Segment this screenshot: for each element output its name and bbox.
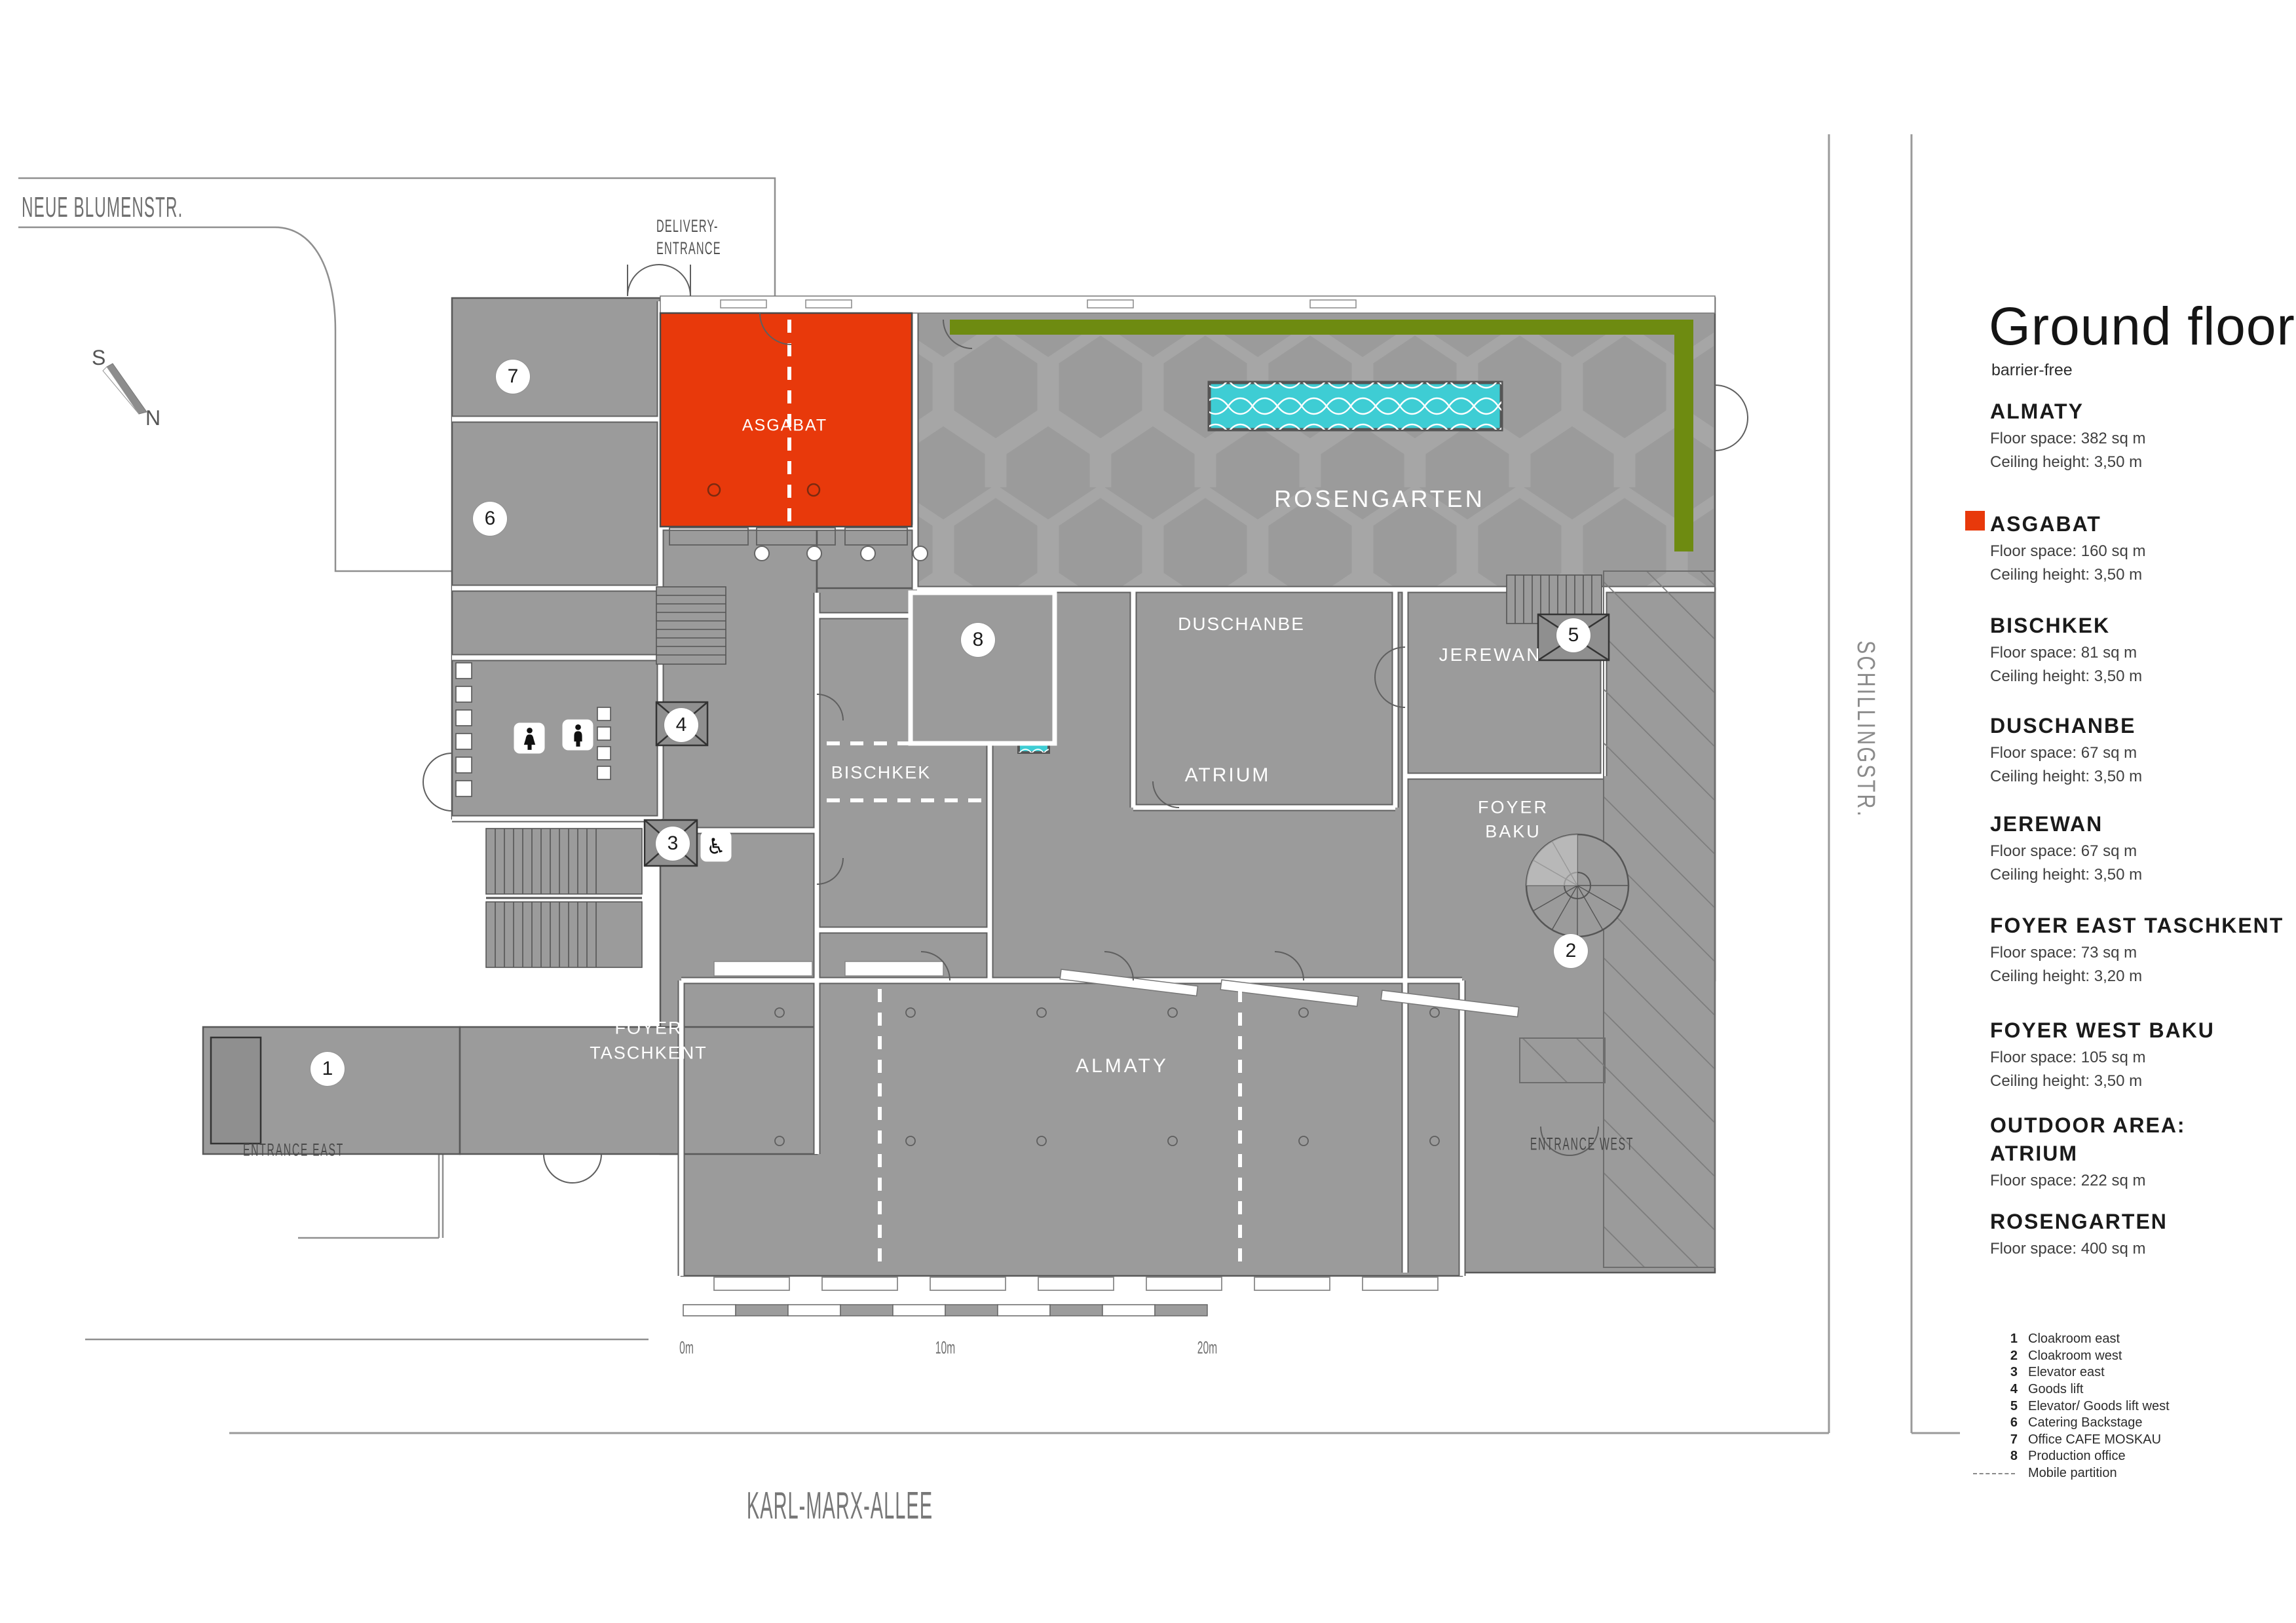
room-label-atrium: ATRIUM — [1185, 764, 1271, 787]
compass-south-label: S — [92, 346, 105, 370]
plan-marker-4: 4 — [664, 708, 698, 742]
marker-7-number: 7 — [508, 365, 519, 388]
scale-bar — [683, 1305, 1207, 1316]
legend-entry-floor: Floor space: 222 sq m — [1990, 1172, 2296, 1190]
rosengarten-pool — [1209, 382, 1501, 430]
legend-item-8: 8Production office — [1989, 1448, 2170, 1465]
plan-marker-1: 1 — [311, 1052, 345, 1086]
legend-entry-name: BISCHKEK — [1990, 614, 2296, 638]
legend-entry-floor: Floor space: 400 sq m — [1990, 1240, 2296, 1258]
floor-plan-page: { "title": "Ground floor", "subtitle": "… — [0, 0, 2296, 1623]
legend-entry-floor: Floor space: 67 sq m — [1990, 842, 2296, 861]
legend-entry-name: OUTDOOR AREA: — [1990, 1113, 2296, 1138]
street-label-karl-marx-allee: KARL-MARX-ALLEE — [747, 1484, 933, 1528]
legend-entry-almaty: ALMATY Floor space: 382 sq m Ceiling hei… — [1990, 400, 2296, 472]
legend-entry-name: DUSCHANBE — [1990, 714, 2296, 738]
compass-icon — [103, 364, 147, 414]
room-label-foyer-baku-2: BAKU — [1485, 822, 1541, 842]
room-label-duschanbe: DUSCHANBE — [1178, 614, 1305, 635]
legend-entry-ceiling: Ceiling height: 3,50 m — [1990, 667, 2296, 686]
entrance-east-label: ENTRANCE EAST — [243, 1140, 344, 1161]
legend-entry-floor: Floor space: 382 sq m — [1990, 430, 2296, 448]
legend-entry-ceiling: Ceiling height: 3,20 m — [1990, 967, 2296, 986]
scale-label-20m: 20m — [1197, 1338, 1217, 1358]
legend-entry-name: ALMATY — [1990, 400, 2296, 424]
marker-6-number: 6 — [485, 508, 496, 530]
legend-item-mobile-partition: Mobile partition — [1989, 1465, 2170, 1482]
legend-entry-ceiling: Ceiling height: 3,50 m — [1990, 866, 2296, 884]
legend-entry-ceiling: Ceiling height: 3,50 m — [1990, 768, 2296, 786]
room-label-foyer-baku-1: FOYER — [1478, 798, 1549, 818]
legend-item-num: 3 — [1989, 1365, 2028, 1380]
legend-entry-asgabat: ASGABAT Floor space: 160 sq m Ceiling he… — [1990, 512, 2296, 584]
legend-entry-floor: Floor space: 105 sq m — [1990, 1049, 2296, 1067]
delivery-entrance-line2-text: ENTRANCE — [656, 238, 721, 259]
street-label-neue-blumenstr: NEUE BLUMENSTR. — [22, 191, 315, 224]
north-window-band — [660, 296, 1715, 313]
legend-item-num: 7 — [1989, 1432, 2028, 1447]
room-label-rosengarten: ROSENGARTEN — [1274, 485, 1484, 513]
legend-entry-floor: Floor space: 73 sq m — [1990, 944, 2296, 962]
wheelchair-icon: ♿ — [701, 831, 732, 862]
room-label-asgabat: ASGABAT — [742, 417, 827, 436]
plan-marker-3: 3 — [656, 827, 690, 861]
asgabat-color-swatch — [1965, 511, 1985, 531]
room-label-foyer-taschkent-2: TASCHKENT — [590, 1043, 707, 1064]
wheelchair-glyph: ♿ — [706, 834, 726, 859]
legend-entry-ceiling: Ceiling height: 3,50 m — [1990, 453, 2296, 472]
legend-entry-name: JEREWAN — [1990, 812, 2296, 836]
street-label-schillingstr: SCHILLINGSTR. — [1851, 641, 1879, 818]
stair-foyer-taschkent — [486, 829, 642, 967]
room-8-box — [911, 593, 1055, 743]
cloakroom-east-inner — [211, 1037, 261, 1144]
delivery-entrance-label-1: DELIVERY- — [656, 216, 760, 236]
room-label-foyer-taschkent-1: FOYER — [614, 1018, 682, 1039]
legend-entry-ceiling: Ceiling height: 3,50 m — [1990, 566, 2296, 584]
legend-item-2: 2Cloakroom west — [1989, 1348, 2170, 1365]
legend-entry-ceiling: Ceiling height: 3,50 m — [1990, 1072, 2296, 1091]
compass-north-label: N — [145, 406, 160, 430]
legend-item-label: Catering Backstage — [2028, 1415, 2143, 1430]
woman-glyph — [516, 725, 542, 751]
legend-entry-duschanbe: DUSCHANBE Floor space: 67 sq m Ceiling h… — [1990, 714, 2296, 786]
legend-item-6: 6Catering Backstage — [1989, 1415, 2170, 1432]
legend-entry-name: ASGABAT — [1990, 512, 2296, 536]
legend-item-label: Office CAFE MOSKAU — [2028, 1432, 2161, 1447]
legend-item-num: 2 — [1989, 1349, 2028, 1364]
legend-entry-floor: Floor space: 160 sq m — [1990, 542, 2296, 561]
mobile-partition-dash — [1989, 1473, 2028, 1474]
legend-item-label: Elevator east — [2028, 1365, 2105, 1380]
legend-item-label: Cloakroom east — [2028, 1332, 2120, 1347]
legend-entry-floor: Floor space: 81 sq m — [1990, 644, 2296, 662]
legend-entry-foyer-west: FOYER WEST BAKU Floor space: 105 sq m Ce… — [1990, 1018, 2296, 1091]
plan-marker-2: 2 — [1554, 934, 1588, 968]
legend-item-num: 4 — [1989, 1382, 2028, 1397]
legend-entry-outdoor-atrium: OUTDOOR AREA: ATRIUM Floor space: 222 sq… — [1990, 1113, 2296, 1190]
woman-icon — [514, 723, 545, 754]
legend-entry-name2: ATRIUM — [1990, 1142, 2296, 1166]
delivery-entrance-label-2: ENTRANCE — [656, 238, 764, 259]
legend-item-label: Goods lift — [2028, 1382, 2083, 1397]
stair-north-central — [656, 587, 726, 664]
marker-4-number: 4 — [676, 714, 687, 736]
marker-2-number: 2 — [1566, 940, 1577, 962]
room-label-jerewan: JEREWAN — [1439, 644, 1542, 665]
legend-item-num: 5 — [1989, 1399, 2028, 1414]
room-label-almaty: ALMATY — [1076, 1055, 1169, 1077]
entrance-west-label: ENTRANCE WEST — [1530, 1134, 1634, 1155]
plan-marker-6: 6 — [473, 502, 507, 536]
legend-entry-floor: Floor space: 67 sq m — [1990, 744, 2296, 762]
legend-item-num: 8 — [1989, 1449, 2028, 1464]
man-glyph — [565, 722, 591, 748]
legend-item-num: 6 — [1989, 1415, 2028, 1430]
legend-item-label: Mobile partition — [2028, 1466, 2117, 1481]
marker-8-number: 8 — [973, 629, 984, 651]
delivery-entrance-line1-text: DELIVERY- — [656, 216, 719, 236]
rosengarten-garden — [917, 320, 1714, 588]
floor-plan-canvas — [0, 0, 2296, 1623]
legend-entry-bischkek: BISCHKEK Floor space: 81 sq m Ceiling he… — [1990, 614, 2296, 686]
man-icon — [563, 720, 593, 751]
legend-item-label: Elevator/ Goods lift west — [2028, 1399, 2170, 1414]
marker-1-number: 1 — [322, 1058, 333, 1080]
legend-item-label: Production office — [2028, 1449, 2126, 1464]
marker-3-number: 3 — [668, 832, 679, 855]
legend-entry-foyer-east: FOYER EAST TASCHKENT Floor space: 73 sq … — [1990, 914, 2296, 986]
plan-marker-7: 7 — [496, 360, 530, 394]
legend-numbered-list: 1Cloakroom east 2Cloakroom west 3Elevato… — [1989, 1331, 2170, 1482]
marker-5-number: 5 — [1568, 624, 1579, 646]
legend-subtitle: barrier-free — [1991, 361, 2073, 380]
scale-label-0m: 0m — [679, 1338, 694, 1358]
legend-entry-name: FOYER EAST TASCHKENT — [1990, 914, 2296, 938]
legend-entry-name: FOYER WEST BAKU — [1990, 1018, 2296, 1043]
legend-item-5: 5Elevator/ Goods lift west — [1989, 1398, 2170, 1415]
plan-marker-8: 8 — [961, 623, 995, 657]
legend-item-1: 1Cloakroom east — [1989, 1331, 2170, 1348]
legend-title: Ground floor — [1989, 296, 2295, 358]
room-asgabat-shape — [660, 313, 928, 561]
legend-item-label: Cloakroom west — [2028, 1349, 2122, 1364]
almaty-south-radiators — [714, 1277, 1438, 1290]
legend-item-3: 3Elevator east — [1989, 1364, 2170, 1381]
legend-entry-rosengarten: ROSENGARTEN Floor space: 400 sq m — [1990, 1210, 2296, 1258]
legend-item-7: 7Office CAFE MOSKAU — [1989, 1432, 2170, 1449]
legend-item-4: 4Goods lift — [1989, 1381, 2170, 1398]
scale-label-10m: 10m — [935, 1338, 955, 1358]
legend-entry-jerewan: JEREWAN Floor space: 67 sq m Ceiling hei… — [1990, 812, 2296, 884]
plan-marker-5: 5 — [1556, 618, 1590, 652]
street-label-neue-blumenstr-text: NEUE BLUMENSTR. — [22, 191, 183, 224]
legend-item-num: 1 — [1989, 1332, 2028, 1347]
legend-entry-name: ROSENGARTEN — [1990, 1210, 2296, 1234]
spiral-stair — [1526, 834, 1628, 937]
room-label-bischkek: BISCHKEK — [831, 763, 932, 783]
